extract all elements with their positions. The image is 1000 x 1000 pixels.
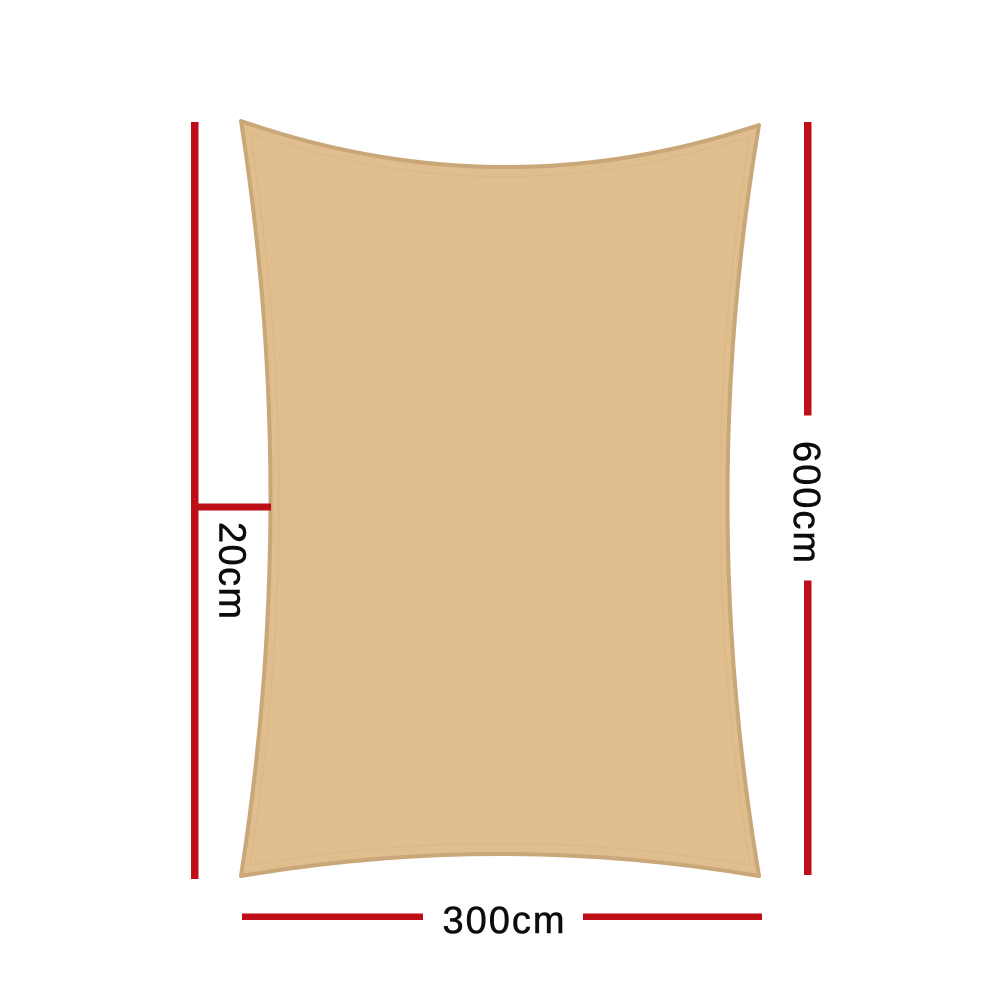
svg-text:600cm: 600cm xyxy=(785,441,827,563)
svg-text:300cm: 300cm xyxy=(443,900,565,942)
svg-text:20cm: 20cm xyxy=(211,522,253,619)
